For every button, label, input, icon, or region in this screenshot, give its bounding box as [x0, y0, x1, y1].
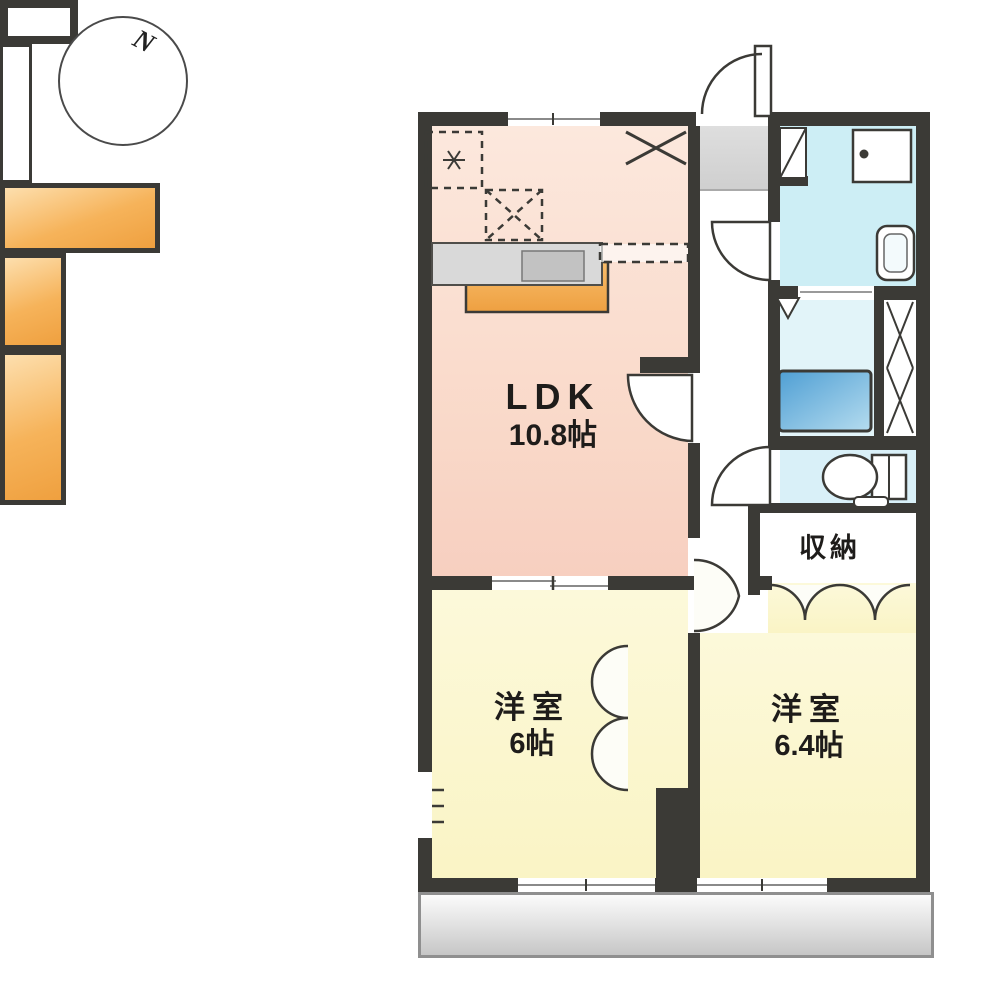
wall: [768, 286, 798, 300]
storage-closet-box: [0, 183, 160, 253]
room-bathroom-floor: [780, 300, 874, 436]
wall: [688, 126, 700, 373]
wall: [874, 300, 884, 437]
shaft-x-hatch-icon: [887, 302, 913, 433]
hall-closet-box: [0, 253, 66, 350]
room-bedroom-east-floor-n: [768, 583, 916, 633]
label-bedroom-west: 洋室 6帖: [432, 690, 632, 761]
wall: [688, 633, 700, 788]
room-ldk-floor: [432, 126, 688, 576]
wall: [768, 112, 930, 126]
bedroom-east-name: 洋室: [709, 692, 909, 729]
ldk-name: LDK: [453, 376, 653, 418]
wall: [655, 878, 697, 892]
pipe-shaft: [0, 44, 32, 183]
wall: [827, 878, 930, 892]
bedroom-west-name: 洋室: [432, 690, 632, 727]
label-ldk: LDK 10.8帖: [453, 376, 653, 454]
toilet-door: [712, 447, 770, 505]
room-washroom-floor: [780, 126, 916, 286]
wall: [748, 576, 772, 590]
wall: [656, 788, 700, 878]
window-bedroom-east-south: [697, 878, 827, 892]
wall: [916, 112, 930, 892]
wall: [640, 357, 696, 373]
bedroom-closet-box: [0, 350, 66, 505]
wall: [600, 112, 696, 126]
wall: [780, 176, 808, 186]
label-bedroom-east: 洋室 6.4帖: [709, 692, 909, 763]
wall: [748, 503, 916, 513]
floor-plan: N LDK 10.8帖 洋室 6帖 洋室 6.4帖 収納: [0, 0, 1000, 1000]
bedroom-west-size: 6帖: [432, 727, 632, 761]
wall: [768, 436, 916, 450]
room-toilet-floor: [780, 446, 916, 503]
label-storage: 収納: [760, 533, 900, 565]
compass: [58, 16, 188, 146]
window-bedroom-west-side: [418, 772, 432, 838]
washroom-door: [712, 222, 770, 280]
wall: [874, 286, 916, 300]
window-ldk-north: [508, 112, 600, 126]
wall: [418, 878, 518, 892]
entrance-door: [702, 46, 771, 116]
bedroom-east-size: 6.4帖: [709, 729, 909, 763]
ldk-size: 10.8帖: [453, 418, 653, 453]
wall: [418, 112, 432, 772]
window-bedroom-west-south: [518, 878, 655, 892]
pipe-space-box: [0, 0, 78, 44]
wall: [418, 576, 492, 590]
wall: [768, 280, 780, 450]
wall: [608, 576, 700, 590]
hall-closet-bifold-door: [694, 560, 739, 631]
entrance-floor: [700, 126, 768, 190]
sliding-door-ldk-bedroom: [492, 578, 608, 588]
wall: [688, 443, 700, 538]
wall: [768, 126, 780, 222]
balcony: [418, 892, 934, 958]
